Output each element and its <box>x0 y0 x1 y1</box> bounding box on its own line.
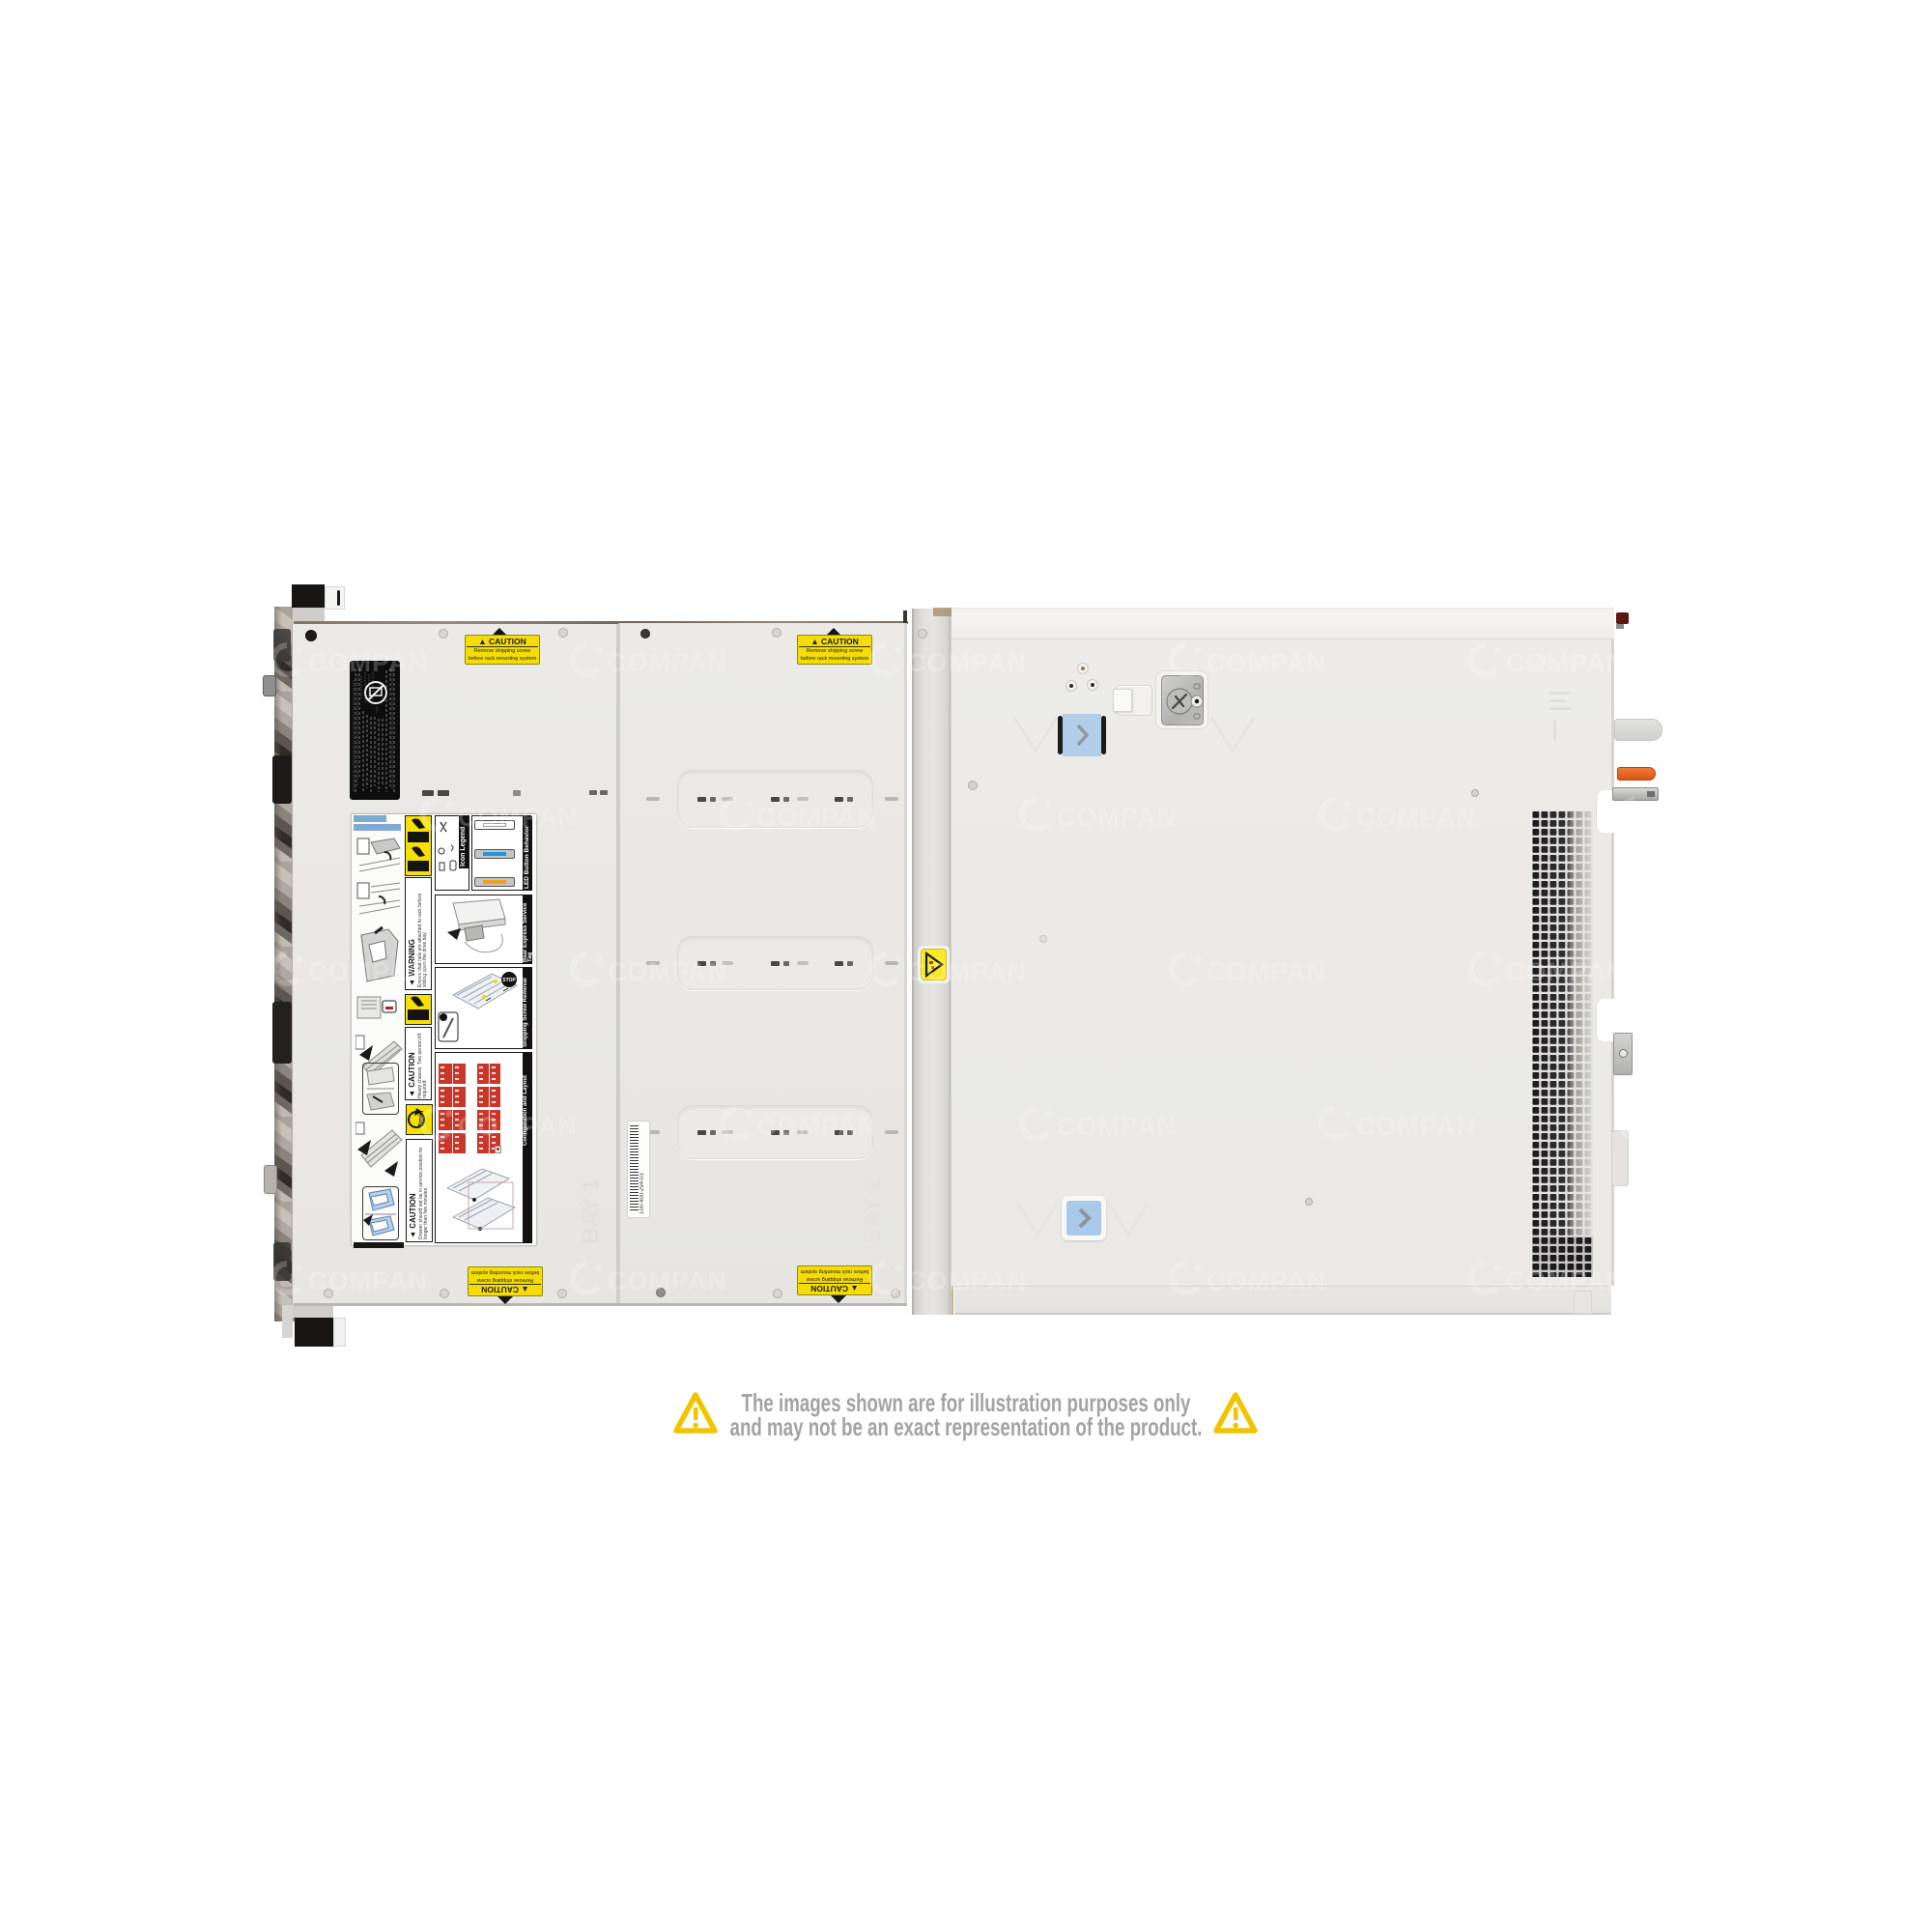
svg-text:5min: 5min <box>418 1111 425 1126</box>
svg-text:STOP: STOP <box>502 978 516 983</box>
